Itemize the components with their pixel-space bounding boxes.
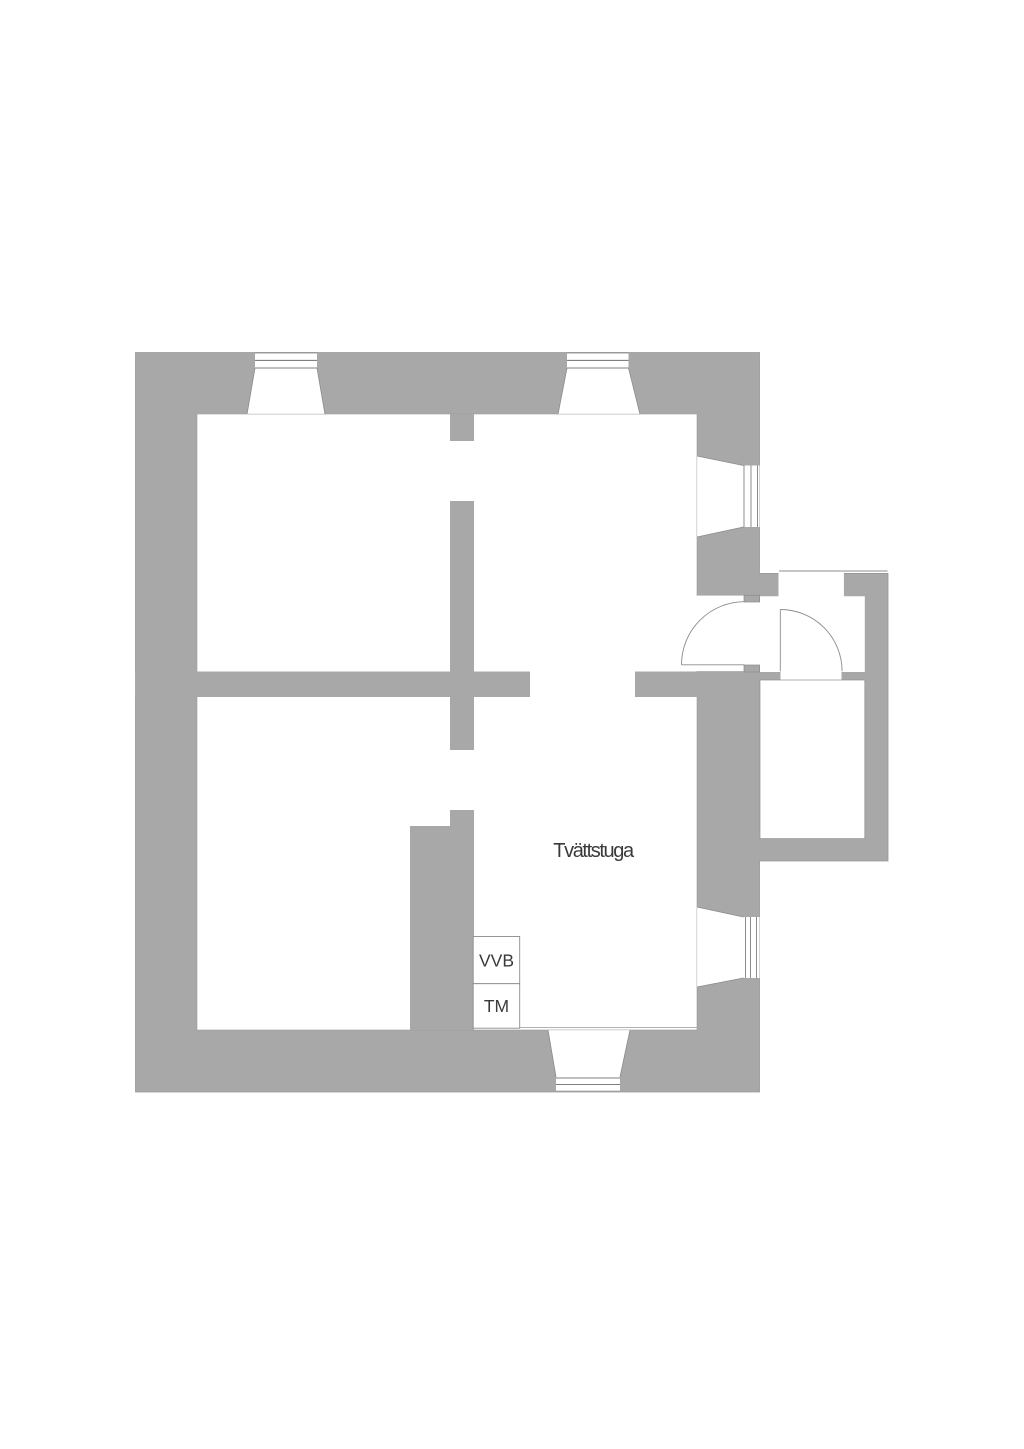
svg-text:TM: TM: [484, 996, 509, 1016]
svg-text:Tvättstuga: Tvättstuga: [553, 840, 635, 862]
svg-text:VVB: VVB: [479, 951, 514, 971]
